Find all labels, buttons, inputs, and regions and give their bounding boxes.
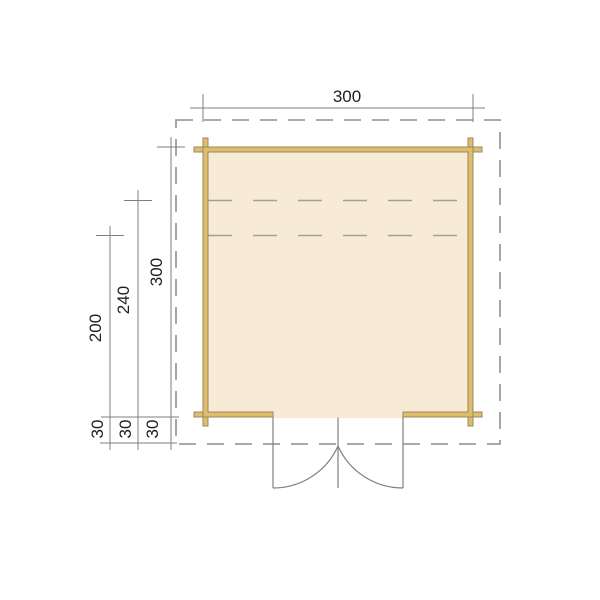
door-swing-arc-right — [338, 446, 403, 488]
log-end-bottom-right-horizontal — [473, 412, 482, 417]
log-end-bottom-left-vertical — [203, 417, 208, 426]
dimension-label-overhang-1: 30 — [88, 420, 107, 439]
dimension-label-240: 240 — [114, 286, 133, 314]
log-end-top-left-vertical — [203, 138, 208, 147]
dimension-left-300: 300 — [147, 137, 185, 450]
dimension-label-200: 200 — [86, 314, 105, 342]
dimension-left-overhang: 30 30 30 — [88, 417, 179, 443]
log-end-bottom-right-vertical — [468, 417, 473, 426]
dimension-label-top-width: 300 — [333, 87, 361, 106]
dimension-left-240: 240 — [114, 190, 152, 450]
dimension-label-overhang-2: 30 — [116, 420, 135, 439]
log-end-top-right-vertical — [468, 138, 473, 147]
door-swing-arc-left — [273, 446, 338, 488]
log-end-top-right-horizontal — [473, 147, 482, 152]
door-opening — [273, 411, 403, 418]
dimension-label-wall-length: 300 — [147, 258, 166, 286]
dimension-top-width: 300 — [190, 87, 485, 122]
floor-plan-drawing: 300 300 240 200 30 30 30 — [0, 0, 600, 600]
log-end-bottom-left-horizontal — [194, 412, 203, 417]
dimension-label-overhang-3: 30 — [143, 420, 162, 439]
floor-plan-canvas: 300 300 240 200 30 30 30 — [0, 0, 600, 600]
dimension-left-200: 200 — [86, 226, 124, 450]
double-door — [273, 411, 403, 488]
log-end-top-left-horizontal — [194, 147, 203, 152]
floor-area — [203, 147, 473, 417]
